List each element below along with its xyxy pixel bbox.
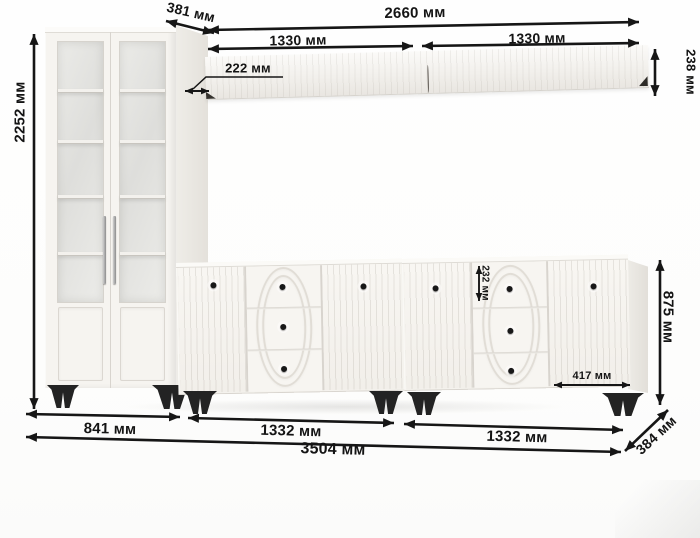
glass-door-left <box>57 41 104 303</box>
dim-sideboard-left-width-label: 1332 мм <box>260 422 322 440</box>
sideboard-door <box>548 260 630 387</box>
glass-shelf <box>120 195 165 199</box>
cabinet-handle-left <box>103 216 106 284</box>
glass-shelf <box>58 252 103 256</box>
glass-shelf <box>120 140 165 144</box>
door-knob <box>360 283 366 289</box>
glass-shelf <box>120 252 165 256</box>
door-knob <box>591 283 597 289</box>
wall-shelf <box>205 45 649 100</box>
glass-shelf <box>58 195 103 199</box>
glass-shelf <box>58 140 103 144</box>
dim-top-drawer-height-label: 232 мм <box>480 265 491 300</box>
drawer-knob <box>280 324 286 330</box>
dim-shelf-depth-label: 222 мм <box>225 61 271 76</box>
shelf-middle-joint <box>427 65 429 93</box>
dim-total-width-label: 3504 мм <box>300 440 366 460</box>
drawer-knob <box>508 368 514 374</box>
dim-shelf-right-width-label: 1330 мм <box>508 30 565 47</box>
glass-door-right <box>119 41 166 303</box>
sideboard-door <box>178 267 246 393</box>
corner-shading <box>615 480 700 538</box>
cabinet-handle-right <box>113 216 116 284</box>
dim-shelf-height-label: 238 мм <box>684 49 699 95</box>
sideboard-side-panel <box>628 260 648 393</box>
shelf-end-bracket <box>206 92 216 99</box>
shelf-end-bracket <box>639 76 648 86</box>
cabinet-lower-panel-left <box>58 307 103 381</box>
dim-shelf-left-width-label: 1330 мм <box>269 32 326 49</box>
dim-sideboard-height-label: 875 мм <box>660 291 677 344</box>
glass-shelf <box>120 89 165 93</box>
door-knob <box>433 285 439 291</box>
drawer-knob <box>507 328 513 334</box>
cabinet-door-gap <box>110 32 111 388</box>
tall-display-cabinet <box>45 27 176 388</box>
drawer-knob <box>279 284 285 290</box>
dim-shelf-total-width-label: 2660 мм <box>384 4 445 22</box>
drawer-knob <box>281 366 287 372</box>
dim-sideboard-right-width-label: 1332 мм <box>486 428 548 447</box>
floor-shadow <box>30 398 660 420</box>
sideboard-door <box>322 264 402 390</box>
drawer-stack <box>246 265 322 391</box>
dim-cabinet-depth-label: 381 мм <box>165 0 217 25</box>
furniture-dimensions-diagram: 2252 мм 381 мм 2660 мм 1330 мм 1330 мм 2… <box>0 0 700 538</box>
dim-door-width-label: 417 мм <box>573 370 612 382</box>
sideboard-door <box>404 263 472 389</box>
dim-cabinet-width-label: 841 мм <box>84 420 137 438</box>
glass-shelf <box>58 89 103 93</box>
door-knob <box>210 282 216 288</box>
cabinet-lower-panel-right <box>120 307 165 381</box>
dim-total-height-label: 2252 мм <box>12 81 29 142</box>
sideboard-left <box>176 259 404 395</box>
